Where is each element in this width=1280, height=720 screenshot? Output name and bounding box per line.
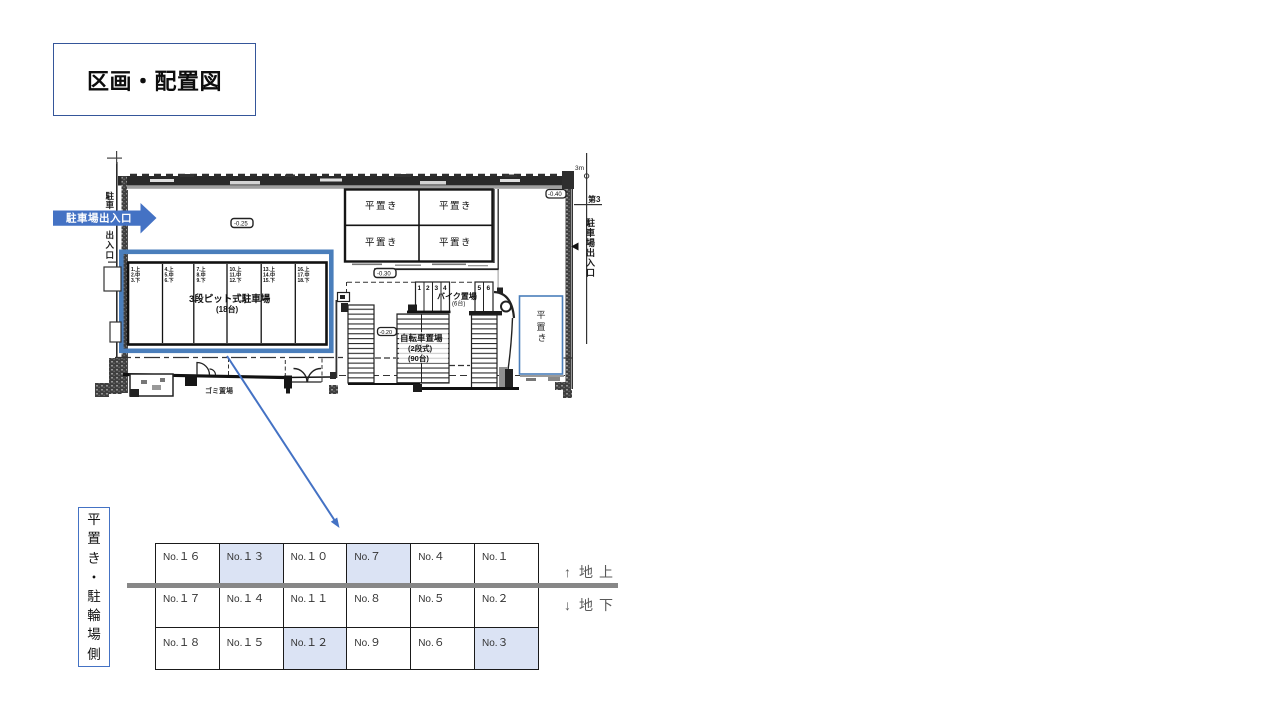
svg-text:9.下: 9.下 (197, 277, 206, 284)
svg-text:(2段式): (2段式) (408, 343, 433, 353)
svg-text:6.下: 6.下 (165, 277, 174, 284)
svg-text:第3: 第3 (588, 194, 601, 204)
svg-text:自転車置場: 自転車置場 (400, 333, 443, 343)
svg-text:3段ピット式駐車場: 3段ピット式駐車場 (189, 293, 271, 305)
svg-text:-0.30: -0.30 (377, 272, 391, 278)
svg-text:-0.20: -0.20 (380, 330, 393, 336)
svg-text:-0.40: -0.40 (548, 192, 562, 198)
svg-text:出入口: 出入口 (105, 230, 115, 260)
svg-text:3.下: 3.下 (131, 277, 140, 284)
svg-text:1: 1 (418, 285, 422, 292)
svg-text:平置き: 平置き (537, 310, 547, 343)
svg-text:-0.25: -0.25 (234, 222, 248, 228)
svg-text:バイク置場: バイク置場 (437, 291, 477, 301)
svg-text:平置き: 平置き (439, 201, 472, 212)
svg-text:平置き: 平置き (439, 238, 472, 249)
svg-text:駐車: 駐車 (106, 191, 115, 210)
svg-text:平置き: 平置き (365, 238, 398, 249)
svg-text:駐車場出入口: 駐車場出入口 (66, 212, 132, 225)
svg-text:2: 2 (426, 285, 430, 292)
svg-text:12.下: 12.下 (230, 277, 242, 284)
svg-text:15.下: 15.下 (263, 277, 275, 284)
svg-text:4: 4 (443, 285, 447, 292)
svg-text:18.下: 18.下 (298, 277, 310, 284)
svg-text:3: 3 (435, 285, 439, 292)
svg-text:(90台): (90台) (408, 353, 429, 363)
svg-text:6: 6 (487, 285, 491, 292)
svg-text:5: 5 (478, 285, 482, 292)
svg-text:(18台): (18台) (216, 304, 239, 314)
svg-text:ゴミ置場: ゴミ置場 (205, 386, 233, 395)
svg-text:(6台): (6台) (452, 300, 465, 308)
svg-text:3m: 3m (575, 165, 584, 172)
svg-text:駐車場出入口: 駐車場出入口 (585, 217, 595, 278)
svg-text:平置き: 平置き (365, 201, 398, 212)
